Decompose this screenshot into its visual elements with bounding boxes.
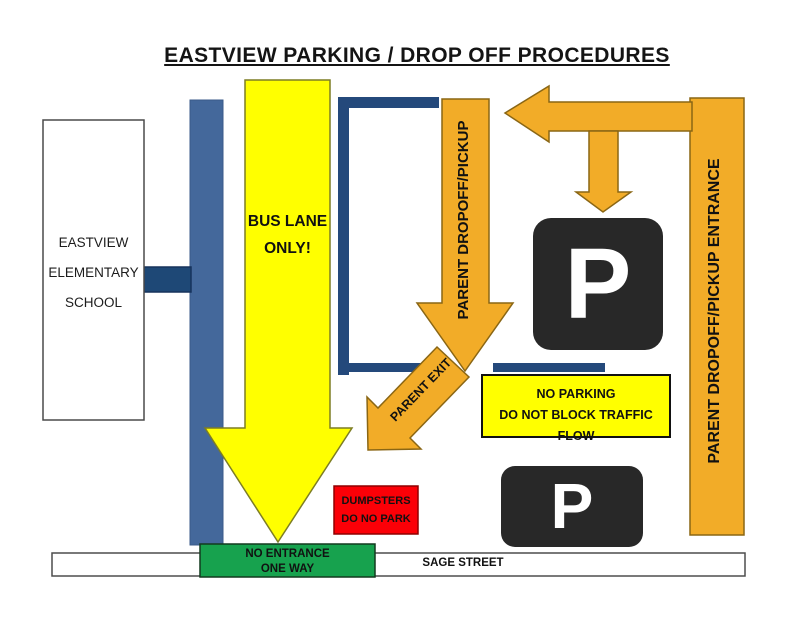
curb-segment xyxy=(493,363,605,372)
page-title: EASTVIEW PARKING / DROP OFF PROCEDURES xyxy=(37,44,797,68)
parking-p-icon: P xyxy=(533,218,663,350)
street-label: SAGE STREET xyxy=(380,557,546,569)
school-connector-bar xyxy=(144,267,191,292)
no-parking-line-1: NO PARKING xyxy=(537,387,616,401)
bus-lane-line-2: ONLY! xyxy=(264,240,311,257)
parent-dropoff-label: PARENT DROPOFF/PICKUP xyxy=(455,110,477,330)
dumpsters-line-1: DUMPSTERS xyxy=(341,495,410,507)
no-entrance-line-1: NO ENTRANCE xyxy=(245,548,329,560)
bus-lane-label: BUS LANEONLY! xyxy=(243,208,332,262)
school-line-2: ELEMENTARY xyxy=(48,265,138,280)
no-entrance-line-2: ONE WAY xyxy=(261,563,314,575)
school-line-3: SCHOOL xyxy=(65,295,122,310)
dumpsters-line-2: DO NO PARK xyxy=(341,513,410,525)
dumpsters-label: DUMPSTERSDO NO PARK xyxy=(334,492,418,528)
bus-lane-line-1: BUS LANE xyxy=(248,213,327,230)
building-side-bar xyxy=(190,100,223,545)
school-line-1: EASTVIEW xyxy=(59,235,129,250)
bus-lane-arrow xyxy=(205,80,352,542)
curb-bracket-top xyxy=(338,97,439,108)
to-parking-down-arrow xyxy=(576,131,631,212)
parking-p-icon: P xyxy=(501,466,643,547)
curb-bracket-vertical xyxy=(338,97,349,375)
school-label: EASTVIEWELEMENTARYSCHOOL xyxy=(43,228,144,318)
no-parking-line-2: DO NOT BLOCK TRAFFIC FLOW xyxy=(499,408,652,443)
no-parking-label: NO PARKINGDO NOT BLOCK TRAFFIC FLOW xyxy=(482,384,670,447)
entrance-label: PARENT DROPOFF/PICKUP ENTRANCE xyxy=(706,151,728,471)
parking-diagram: EASTVIEW PARKING / DROP OFF PROCEDURES E… xyxy=(0,0,800,618)
no-entrance-label: NO ENTRANCEONE WAY xyxy=(200,547,375,576)
